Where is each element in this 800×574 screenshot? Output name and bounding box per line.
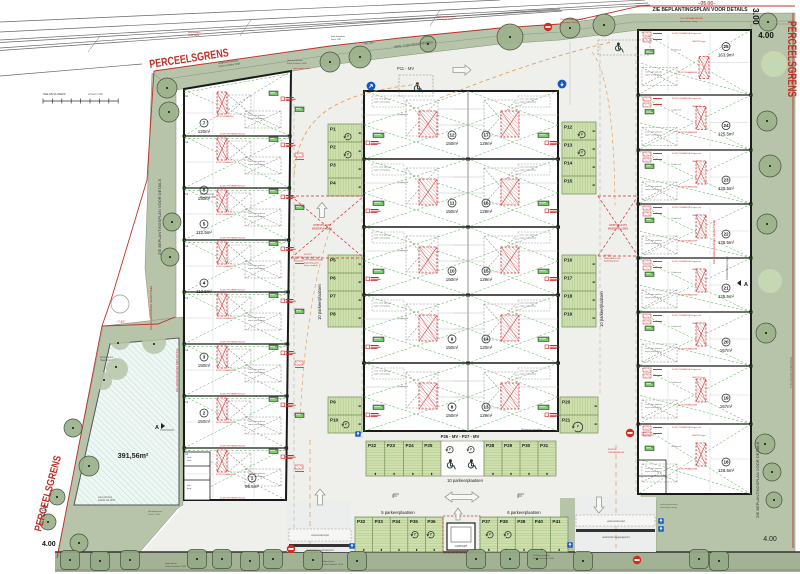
svg-text:14: 14	[483, 337, 489, 342]
svg-text:Cera voor gebouw: Cera voor gebouw	[248, 160, 265, 163]
svg-text:Cofibstrad: Cofibstrad	[671, 49, 682, 52]
svg-text:P33: P33	[375, 519, 384, 524]
svg-text:eigen verharding: eigen verharding	[374, 237, 391, 240]
svg-text:stock: stock	[187, 459, 192, 462]
svg-text:Grijze beton: Grijze beton	[165, 562, 178, 565]
svg-text:SLUZU'I: SLUZU'I	[608, 449, 616, 451]
svg-text:SLZ3/I THVHANDLB/8: SLZ3/I THVHANDLB/8	[678, 186, 697, 189]
svg-text:Cera voor gebouw: Cera voor gebouw	[374, 369, 392, 372]
svg-text:SLUZU THV HANDELING bepl.: SLUZU THV HANDELING bepl.	[220, 393, 246, 396]
svg-text:150m²: 150m²	[198, 363, 211, 368]
svg-text:eigen verharding: eigen verharding	[645, 296, 661, 299]
svg-text:25: 25	[723, 44, 729, 49]
svg-text:P2: P2	[330, 145, 336, 150]
svg-text:eigen verharding: eigen verharding	[374, 101, 391, 104]
svg-text:P29: P29	[504, 443, 513, 448]
svg-text:Cera voor gebouw: Cera voor gebouw	[248, 212, 265, 215]
svg-text:verkeersdrempel: verkeersdrempel	[311, 534, 329, 537]
svg-text:150m²: 150m²	[446, 277, 459, 282]
svg-text:eigen verharding: eigen verharding	[645, 242, 661, 245]
svg-text:96.5m²: 96.5m²	[245, 484, 259, 489]
svg-text:tband grijs 1m20: tband grijs 1m20	[437, 18, 454, 21]
svg-text:THV. EIKZAADGROEN: THV. EIKZAADGROEN	[680, 17, 703, 20]
svg-text:22: 22	[723, 232, 729, 237]
svg-text:SLZ3/I THVHANDLB: SLZ3/I THVHANDLB	[216, 213, 234, 216]
svg-text:aanleg groenzone: aanleg groenzone	[660, 503, 678, 506]
svg-text:P10: P10	[330, 418, 339, 423]
svg-text:5: 5	[203, 222, 206, 227]
svg-text:SLZ3/I THVHANDLB: SLZ3/I THVHANDLB	[216, 369, 234, 372]
svg-text:Frank Fontaine 14/20: Frank Fontaine 14/20	[287, 62, 308, 65]
svg-text:H: H	[186, 94, 188, 98]
svg-text:H: H	[186, 244, 188, 248]
svg-text:THV. EIKZAADGROEN: THV. EIKZAADGROEN	[560, 18, 583, 21]
svg-text:Tuinafscheiding hagen: Tuinafscheiding hagen	[726, 255, 729, 280]
svg-text:Cofibstrad: Cofibstrad	[398, 385, 409, 388]
svg-text:8: 8	[451, 405, 454, 410]
svg-text:DHW GEVEL LSR: DHW GEVEL LSR	[304, 257, 321, 259]
svg-text:beplanting - haag: beplanting - haag	[560, 21, 578, 24]
svg-text:berg.: berg.	[187, 488, 192, 490]
svg-text:Waalvingen handelen: Waalvingen handelen	[521, 429, 543, 431]
svg-text:P19: P19	[564, 312, 573, 317]
svg-text:eigen verharding: eigen verharding	[645, 133, 661, 136]
svg-text:SLUZU'I THVHANDLBLS eigen verh: SLUZU'I THVHANDLBLS eigen verh.	[672, 314, 702, 317]
svg-text:eigen verharding: eigen verharding	[520, 101, 537, 104]
svg-text:DHW GEVEL LSR: DHW GEVEL LSR	[604, 258, 621, 260]
svg-text:Cera voor gebouw: Cera voor gebouw	[645, 403, 662, 406]
svg-text:128.5m²: 128.5m²	[718, 468, 735, 473]
svg-text:THV. DRAAD OMHEINING: THV. DRAAD OMHEINING	[789, 357, 793, 388]
svg-text:4.00: 4.00	[758, 31, 774, 40]
svg-text:Cera voor gebouw: Cera voor gebouw	[520, 301, 538, 304]
svg-text:eigen verharding: eigen verharding	[645, 406, 661, 409]
svg-text:A: A	[744, 282, 748, 288]
svg-text:Cera voor gebouw: Cera voor gebouw	[520, 97, 538, 100]
svg-text:beplanting groen: beplanting groen	[304, 261, 319, 264]
svg-text:5 parkeerplaatsen: 5 parkeerplaatsen	[381, 510, 415, 515]
svg-text:CARPORT eigen: CARPORT eigen	[692, 376, 706, 379]
svg-text:150m²: 150m²	[446, 345, 459, 350]
svg-text:H: H	[186, 348, 188, 352]
svg-text:eigen verharding: eigen verharding	[374, 305, 391, 308]
svg-text:P23: P23	[387, 443, 396, 448]
svg-text:P37: P37	[482, 519, 491, 524]
svg-text:beton 1m20: beton 1m20	[188, 34, 200, 37]
svg-text:Cera voor gebouw: Cera voor gebouw	[248, 264, 265, 267]
svg-text:schaal 1:200: schaal 1:200	[88, 92, 103, 96]
svg-text:tuinb.: tuinb.	[187, 456, 192, 459]
svg-text:P6: P6	[330, 276, 336, 281]
svg-text:12: 12	[449, 133, 455, 138]
svg-text:SLZ3/I THVHANDLB/8: SLZ3/I THVHANDLB/8	[678, 71, 697, 74]
svg-text:CARPORT: CARPORT	[455, 544, 468, 548]
svg-text:eigen verharding: eigen verharding	[374, 169, 391, 172]
svg-text:P28: P28	[486, 443, 495, 448]
svg-text:MINDERVALIDEN: MINDERVALIDEN	[312, 227, 333, 230]
svg-text:P16: P16	[564, 258, 573, 263]
svg-text:2: 2	[203, 411, 206, 416]
svg-text:ZIE BEPLANTINGSPLAN VOOR DETAI: ZIE BEPLANTINGSPLAN VOOR DETAILS	[157, 179, 162, 256]
svg-text:129m²: 129m²	[480, 277, 493, 282]
svg-text:eigen verharding: eigen verharding	[645, 350, 661, 353]
svg-text:167m²: 167m²	[720, 348, 733, 353]
svg-text:Cofibstrad: Cofibstrad	[671, 325, 682, 328]
svg-text:echo picirinus: echo picirinus	[98, 496, 113, 499]
svg-text:eigen verharding: eigen verharding	[248, 215, 264, 218]
svg-text:P41: P41	[552, 519, 561, 524]
svg-text:Cofibstrad: Cofibstrad	[398, 317, 409, 320]
svg-text:20: 20	[723, 340, 729, 345]
svg-text:Cera voor gebouw: Cera voor gebouw	[520, 369, 538, 372]
svg-text:Silva postmus: Silva postmus	[200, 193, 215, 196]
svg-text:Cofibstrad: Cofibstrad	[671, 445, 682, 448]
svg-text:11: 11	[450, 201, 455, 206]
svg-text:4: 4	[203, 281, 206, 286]
svg-text:Geenmal betsize: Geenmal betsize	[287, 59, 303, 62]
svg-text:Cera voor gebouw: Cera voor gebouw	[520, 165, 538, 168]
svg-text:'Daedalus' W30: 'Daedalus' W30	[200, 197, 217, 199]
svg-text:Cera voor gebouw: Cera voor gebouw	[645, 71, 662, 74]
svg-text:RAL EIKZAADGROEN BEPLANTING: RAL EIKZAADGROEN BEPLANTING	[175, 349, 179, 392]
svg-text:P14: P14	[564, 161, 573, 166]
svg-text:4.00: 4.00	[763, 536, 777, 543]
svg-text:P13: P13	[564, 143, 573, 148]
svg-text:3: 3	[203, 355, 206, 360]
svg-text:'Frans' 1635: 'Frans' 1635	[148, 513, 161, 516]
svg-text:voetektraan sig: voetektraan sig	[641, 434, 654, 437]
svg-text:129m²: 129m²	[480, 209, 493, 214]
svg-text:9: 9	[451, 337, 454, 342]
svg-text:'Frans Fontaine' 1820: 'Frans Fontaine' 1820	[533, 557, 555, 560]
svg-text:SLUZU'I: SLUZU'I	[304, 254, 312, 256]
svg-text:18: 18	[723, 460, 729, 465]
svg-text:haag - verplicht: haag - verplicht	[304, 264, 318, 267]
svg-text:SLUZU'I THVHANDLBLS eigen verh: SLUZU'I THVHANDLBLS eigen verh.	[672, 32, 702, 35]
svg-text:RAL EIKZAADGROEN GEVELSTEEN: RAL EIKZAADGROEN GEVELSTEEN	[712, 220, 716, 264]
svg-text:P22: P22	[368, 443, 377, 448]
svg-text:15: 15	[483, 269, 489, 274]
svg-text:beplanting - haag: beplanting - haag	[680, 20, 698, 23]
svg-text:150m²: 150m²	[446, 413, 459, 418]
svg-text:Cofibstrad: Cofibstrad	[671, 217, 682, 220]
svg-text:163.9m²: 163.9m²	[718, 53, 735, 58]
svg-text:haar tomgaats: haar tomgaats	[331, 35, 346, 38]
svg-text:150m²: 150m²	[198, 419, 211, 424]
svg-text:Cofibstrad: Cofibstrad	[671, 271, 682, 274]
svg-text:Cera voor gebouw: Cera voor gebouw	[645, 293, 662, 296]
svg-text:H: H	[186, 140, 188, 144]
svg-text:112.5m²: 112.5m²	[196, 230, 212, 235]
svg-text:NR 17.0: NR 17.0	[700, 1, 713, 5]
svg-text:SLUZU THV HANDELING bepl.: SLUZU THV HANDELING bepl.	[220, 133, 246, 136]
svg-text:eigen verharding: eigen verharding	[645, 73, 661, 76]
svg-text:P9: P9	[330, 400, 336, 405]
svg-text:10: 10	[449, 269, 455, 274]
svg-text:GELIJKVLOERS: GELIJKVLOERS	[43, 92, 66, 96]
svg-text:SLUZU THV HANDELING bepl.: SLUZU THV HANDELING bepl.	[220, 185, 246, 188]
svg-text:Cofibstrad: Cofibstrad	[671, 109, 682, 112]
svg-text:eigen verharding: eigen verharding	[248, 319, 264, 322]
svg-text:Cera voor gebouw: Cera voor gebouw	[645, 185, 662, 188]
svg-text:SLUZU'I THVHANDLBLS eigen verh: SLUZU'I THVHANDLBLS eigen verh.	[672, 426, 702, 429]
svg-text:P35: P35	[410, 519, 419, 524]
svg-text:SLZ3/I THVHANDLB/8: SLZ3/I THVHANDLB/8	[678, 404, 697, 407]
svg-text:MINDERVALIDEN: MINDERVALIDEN	[608, 227, 629, 230]
svg-text:SLUZU THV HANDELING bepl.: SLUZU THV HANDELING bepl.	[220, 445, 246, 448]
svg-text:Duurz: Duurz	[641, 431, 646, 434]
svg-text:P3: P3	[330, 163, 336, 168]
svg-text:SLUZU'I THVHANDLBLS eigen verh: SLUZU'I THVHANDLBLS eigen verh.	[672, 97, 702, 100]
svg-text:SLUZU THV HANDELING bepl.: SLUZU THV HANDELING bepl.	[220, 289, 246, 292]
svg-text:150m²: 150m²	[446, 209, 459, 214]
svg-text:P40: P40	[535, 519, 544, 524]
svg-text:SLZ3/I THVHANDLB: SLZ3/I THVHANDLB	[216, 421, 234, 424]
svg-text:Arica/prunus: Arica/prunus	[100, 356, 114, 359]
svg-text:eigen verharding: eigen verharding	[248, 163, 264, 166]
svg-text:125.5m²: 125.5m²	[718, 186, 735, 191]
svg-text:ZIE BEPLANTINGSPLAN VOOR DETAI: ZIE BEPLANTINGSPLAN VOOR DETAILS	[653, 7, 748, 13]
svg-text:SLZ3/I THVHANDLB: SLZ3/I THVHANDLB	[216, 115, 234, 118]
svg-text:Cofibstrad: Cofibstrad	[398, 181, 409, 184]
svg-text:P4: P4	[330, 181, 336, 186]
svg-text:24: 24	[723, 123, 729, 128]
svg-text:kant omrijden beton: kant omrijden beton	[437, 15, 457, 18]
svg-text:120m²: 120m²	[480, 345, 493, 350]
svg-text:23: 23	[723, 178, 729, 183]
svg-text:4.00: 4.00	[42, 541, 56, 548]
svg-text:P39: P39	[517, 519, 526, 524]
svg-text:eigen verharding: eigen verharding	[520, 237, 537, 240]
svg-text:17: 17	[483, 133, 489, 138]
svg-text:SLUZU'I THVHANDLBLS eigen verh: SLUZU'I THVHANDLBLS eigen verh.	[672, 368, 702, 371]
svg-text:Woudploemen: Woudploemen	[148, 511, 163, 513]
svg-text:P25: P25	[424, 443, 433, 448]
svg-text:Cofibstrad: Cofibstrad	[398, 249, 409, 252]
svg-text:SLZ3/I THVHANDLB/8: SLZ3/I THVHANDLB/8	[678, 240, 697, 243]
svg-text:eigen verharding: eigen verharding	[520, 305, 537, 308]
svg-text:P18: P18	[564, 294, 573, 299]
svg-text:P8: P8	[330, 312, 336, 317]
svg-text:SLUZU THV HANDELING bepl.: SLUZU THV HANDELING bepl.	[220, 497, 246, 500]
svg-text:Cera voor gebouw: Cera voor gebouw	[374, 97, 392, 100]
svg-text:SLUZU'I: SLUZU'I	[604, 255, 612, 257]
svg-text:Cofibstrad: Cofibstrad	[398, 113, 409, 116]
svg-text:SLUZU THV HANDELING bepl.: SLUZU THV HANDELING bepl.	[220, 341, 246, 344]
svg-text:P36: P36	[427, 519, 436, 524]
svg-text:SLUZU'I THVHANDLBLS eigen verh: SLUZU'I THVHANDLBLS eigen verh.	[672, 260, 702, 263]
svg-text:P12: P12	[564, 125, 573, 130]
svg-text:P38: P38	[500, 519, 509, 524]
svg-text:Dwrs. 160: Dwrs. 160	[331, 38, 342, 41]
svg-text:P34: P34	[392, 519, 401, 524]
svg-text:1: 1	[251, 476, 254, 481]
svg-text:Caucht var 1635: Caucht var 1635	[98, 499, 116, 502]
svg-text:Grijze beton: Grijze beton	[322, 560, 335, 563]
svg-text:kant omrijden: kant omrijden	[188, 31, 201, 34]
svg-text:H: H	[186, 192, 188, 196]
svg-text:3.00: 3.00	[751, 8, 761, 25]
svg-text:ZIE BEPLANTINGSPLAN VOOR DETAI: ZIE BEPLANTINGSPLAN VOOR DETAILS	[755, 442, 760, 519]
svg-text:H: H	[186, 400, 188, 404]
svg-text:eigen verharding: eigen verharding	[645, 188, 661, 191]
svg-text:SLUZU'I THVHANDLBLS eigen verh: SLUZU'I THVHANDLBLS eigen verh.	[672, 152, 702, 155]
svg-text:−7.67−: −7.67−	[116, 320, 127, 324]
svg-text:125.5m²: 125.5m²	[718, 132, 735, 137]
svg-text:elektrische toegangspoort: elektrische toegangspoort	[602, 536, 630, 539]
svg-text:THV HANDELINGEN: THV HANDELINGEN	[304, 259, 324, 262]
svg-text:streekeigen haag: streekeigen haag	[660, 506, 678, 509]
svg-text:verkeersdrempel: verkeersdrempel	[607, 520, 625, 523]
svg-text:SLZ3/I THVHANDLB/8: SLZ3/I THVHANDLB/8	[678, 294, 697, 297]
svg-text:Cera voor gebouw: Cera voor gebouw	[374, 301, 392, 304]
svg-text:SLZ3/I THVHANDLB/8: SLZ3/I THVHANDLB/8	[678, 131, 697, 134]
svg-text:P15: P15	[564, 179, 573, 184]
svg-text:THV HANDELING: THV HANDELING	[608, 451, 625, 454]
svg-text:PERCEELSGRENS: PERCEELSGRENS	[785, 21, 799, 97]
svg-text:Cera voor gebouw: Cera voor gebouw	[645, 239, 662, 242]
svg-text:Cera voor gebouw: Cera voor gebouw	[645, 131, 662, 134]
svg-text:167m²: 167m²	[720, 404, 733, 409]
svg-text:125.5m²: 125.5m²	[718, 240, 735, 245]
svg-text:eigen verharding: eigen verharding	[248, 267, 264, 270]
svg-text:P30: P30	[522, 443, 531, 448]
svg-text:P1: P1	[330, 127, 336, 132]
svg-text:10 parkeerplaatsen: 10 parkeerplaatsen	[447, 478, 484, 483]
svg-text:H: H	[186, 452, 188, 456]
svg-text:P17: P17	[564, 276, 573, 281]
svg-text:P20: P20	[562, 400, 571, 405]
svg-text:P11 - MV: P11 - MV	[397, 66, 414, 71]
svg-text:Catharus betonie: Catharus betonie	[533, 554, 550, 557]
svg-text:P24: P24	[406, 443, 415, 448]
svg-text:eigen verharding: eigen verharding	[645, 470, 661, 473]
svg-text:19: 19	[723, 396, 729, 401]
svg-text:P7: P7	[330, 294, 336, 299]
svg-text:13: 13	[483, 405, 489, 410]
svg-text:RAL EIKZAADGROEN GEVELSTEEN: RAL EIKZAADGROEN GEVELSTEEN	[149, 286, 153, 330]
svg-text:Cera voor gebouw: Cera voor gebouw	[374, 233, 392, 236]
svg-text:125.5m²: 125.5m²	[718, 294, 735, 299]
svg-text:120m²: 120m²	[198, 129, 211, 134]
svg-text:CARPORT eigen: CARPORT eigen	[692, 40, 706, 43]
svg-text:eigen verharding: eigen verharding	[248, 117, 264, 120]
svg-text:Cera voor gebouw: Cera voor gebouw	[645, 467, 662, 470]
svg-text:SLZ3/I THVHANDLB: SLZ3/I THVHANDLB	[216, 161, 234, 164]
svg-text:Cera voor gebouw: Cera voor gebouw	[520, 233, 538, 236]
svg-text:Cera voor gebouw: Cera voor gebouw	[645, 347, 662, 350]
svg-text:21: 21	[723, 286, 729, 291]
svg-text:Cera voor gebouw: Cera voor gebouw	[248, 114, 265, 117]
svg-text:SLZ3/I THVHANDLB: SLZ3/I THVHANDLB	[216, 265, 234, 268]
svg-text:Cofibstrad: Cofibstrad	[671, 163, 682, 166]
svg-text:eigen verharding: eigen verharding	[248, 423, 264, 426]
svg-text:Cera voor gebouw: Cera voor gebouw	[374, 165, 392, 168]
svg-text:7: 7	[203, 121, 206, 126]
svg-text:Cera voor gebouw: Cera voor gebouw	[248, 420, 265, 423]
svg-text:150m²: 150m²	[446, 141, 459, 146]
svg-text:16: 16	[483, 201, 489, 206]
svg-text:P21: P21	[562, 418, 571, 423]
svg-text:eigen verharding: eigen verharding	[374, 373, 391, 376]
svg-text:P32: P32	[357, 519, 366, 524]
svg-text:eigen verharding: eigen verharding	[248, 371, 264, 374]
svg-text:P26 - MV - P27 - MV: P26 - MV - P27 - MV	[441, 434, 480, 439]
svg-text:A: A	[155, 425, 159, 431]
svg-text:SLUZU THV HANDELING bepl.: SLUZU THV HANDELING bepl.	[220, 237, 246, 240]
svg-text:P31: P31	[540, 443, 549, 448]
svg-text:eigen verharding: eigen verharding	[520, 169, 537, 172]
svg-text:391,56m²: 391,56m²	[118, 451, 149, 460]
svg-text:Cofibstrad: Cofibstrad	[671, 381, 682, 384]
svg-text:fiets-: fiets-	[187, 484, 192, 487]
svg-text:129m²: 129m²	[480, 413, 493, 418]
svg-text:SLUZU'I THVHANDLBLS eigen verh: SLUZU'I THVHANDLBLS eigen verh.	[672, 206, 702, 209]
svg-text:eigen verharding: eigen verharding	[520, 373, 537, 376]
svg-text:'Frans Fontaine' 1820: 'Frans Fontaine' 1820	[165, 565, 187, 568]
svg-text:SLZ3/I THVHANDLB: SLZ3/I THVHANDLB	[216, 317, 234, 320]
svg-text:129m²: 129m²	[480, 141, 493, 146]
svg-text:H: H	[186, 296, 188, 300]
svg-text:woensopens verple: woensopens verple	[293, 68, 311, 70]
svg-text:Cera voor gebouw: Cera voor gebouw	[248, 316, 265, 319]
svg-text:beplanting groen: beplanting groen	[604, 260, 619, 263]
svg-text:10 parkeerplaatsen: 10 parkeerplaatsen	[317, 283, 322, 320]
svg-text:Cera voor gebouw: Cera voor gebouw	[248, 368, 265, 371]
svg-text:SLZ3/I THVHANDLB/8: SLZ3/I THVHANDLB/8	[678, 468, 697, 471]
svg-text:'Frans Fontaine' 1620: 'Frans Fontaine' 1620	[322, 563, 344, 566]
svg-text:CARPORT eigen: CARPORT eigen	[692, 434, 706, 437]
svg-text:SLZ3/I THVHANDLB: SLZ3/I THVHANDLB	[216, 473, 234, 476]
svg-text:6 parkeerplaatsen: 6 parkeerplaatsen	[507, 510, 541, 515]
svg-text:SLZ3/I THVHANDLB/8: SLZ3/I THVHANDLB/8	[678, 348, 697, 351]
